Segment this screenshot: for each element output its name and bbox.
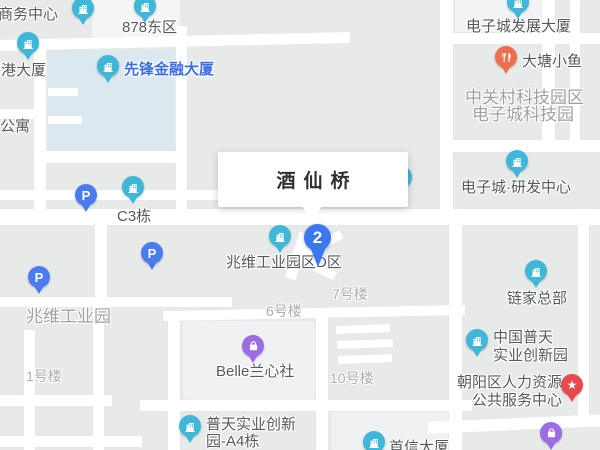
building-icon (269, 225, 291, 247)
place-infobox[interactable]: 酒仙桥 (218, 152, 408, 207)
shop-poi-bottom-right-poi[interactable] (540, 422, 562, 450)
bag-icon (242, 335, 264, 357)
parking-icon: P (28, 266, 50, 288)
road (336, 324, 390, 334)
xianfeng-finance-tower-poi[interactable] (97, 55, 119, 85)
parking-3-poi[interactable]: P (28, 266, 50, 296)
building-no1-label: 1号楼 (26, 366, 62, 386)
datang-xiaoyu-restaurant-poi[interactable] (495, 46, 517, 76)
poi-tail (513, 11, 523, 19)
road (34, 151, 186, 163)
zhaowei-industrial-d-area-poi[interactable] (269, 225, 291, 255)
road (0, 190, 232, 200)
building-icon (466, 329, 488, 351)
road (449, 216, 462, 450)
zhaowei-industrial-park-label: 兆维工业园 (26, 302, 111, 327)
poi-tail (512, 170, 522, 178)
gang-tower-poi[interactable] (17, 32, 39, 62)
poi-tail (567, 394, 577, 402)
apartment-label-label: 公寓 (0, 115, 30, 136)
building-icon (122, 176, 144, 198)
road (48, 116, 82, 124)
lianjia-hq-poi[interactable] (525, 260, 547, 290)
china-putian-innovation-park-poi[interactable] (466, 329, 488, 359)
road (24, 330, 35, 450)
star-icon: ★ (561, 374, 583, 396)
building-icon (179, 415, 201, 437)
gang-tower-label[interactable]: 南港大厦 (0, 59, 46, 80)
putian-a4-building-poi[interactable] (179, 415, 201, 445)
map-canvas[interactable]: 878商务中心878东区南港大厦先锋金融大厦电子城发展大厦大塘小鱼电子城·研发中… (0, 0, 600, 450)
result-marker-pin[interactable]: 2 (304, 224, 332, 270)
building-no10-label: 10号楼 (330, 368, 374, 388)
poi-tail (248, 355, 258, 363)
putian-a4-building-label[interactable]: 园-A4栋 (206, 430, 259, 450)
parking-icon: P (75, 184, 97, 206)
road (337, 339, 393, 349)
infobox-tail (302, 206, 322, 220)
poi-tail (531, 280, 541, 288)
poi-tail (275, 245, 285, 253)
shouxin-tower-label[interactable]: 首信大厦 (389, 436, 449, 450)
building-no7-label: 7号楼 (332, 284, 368, 304)
parking-icon: P (141, 242, 163, 264)
poi-tail (546, 442, 556, 450)
china-putian-innovation-park-label[interactable]: 实业创新园 (493, 344, 568, 365)
building-icon (97, 55, 119, 77)
building-icon (17, 32, 39, 54)
chaoyang-hr-service-center-poi[interactable]: ★ (561, 374, 583, 404)
road (338, 354, 392, 364)
road (48, 88, 78, 96)
poi-tail (103, 75, 113, 83)
building-icon (363, 431, 385, 450)
dianzicheng-rd-center-poi[interactable] (506, 150, 528, 180)
building-icon (506, 150, 528, 172)
biz-center-878-poi[interactable] (72, 0, 94, 27)
marker-tail (310, 247, 326, 267)
marker-number: 2 (313, 228, 322, 248)
poi-tail (147, 262, 157, 270)
poi-tail (23, 52, 33, 60)
poi-tail (185, 435, 195, 443)
place-title: 酒仙桥 (268, 166, 357, 193)
poi-tail (128, 196, 138, 204)
c3-building-poi[interactable] (122, 176, 144, 206)
xianfeng-finance-tower-label[interactable]: 先锋金融大厦 (124, 58, 214, 79)
lianjia-hq-label[interactable]: 链家总部 (507, 287, 567, 308)
dianzicheng-development-tower-poi[interactable] (507, 0, 529, 21)
zhongguancun-science-park-label: 电子城科技园 (472, 100, 574, 125)
belle-lanxinshe-poi[interactable] (242, 335, 264, 365)
parking-2-poi[interactable]: P (141, 242, 163, 272)
road (0, 436, 142, 447)
poi-tail (81, 204, 91, 212)
poi-tail (140, 15, 150, 23)
road (95, 216, 107, 304)
road (316, 314, 328, 450)
building-icon (525, 260, 547, 282)
shouxin-tower-poi[interactable] (363, 431, 385, 450)
c3-building-label[interactable]: C3栋 (117, 205, 151, 226)
bag-icon (540, 422, 562, 444)
building-no6-label: 6号楼 (266, 301, 302, 321)
poi-tail (501, 66, 511, 74)
datang-xiaoyu-restaurant-label[interactable]: 大塘小鱼 (522, 50, 582, 71)
biz-center-878-label[interactable]: 878商务中心 (0, 3, 58, 24)
chaoyang-hr-service-center-label[interactable]: 公共服务中心 (472, 389, 562, 410)
road (176, 26, 187, 216)
poi-tail (34, 286, 44, 294)
parking-1-poi[interactable]: P (75, 184, 97, 214)
poi-tail (78, 17, 88, 25)
restaurant-icon (495, 46, 517, 68)
road (140, 400, 472, 411)
road (163, 305, 465, 321)
878-east-area-poi[interactable] (134, 0, 156, 25)
poi-tail (472, 349, 482, 357)
